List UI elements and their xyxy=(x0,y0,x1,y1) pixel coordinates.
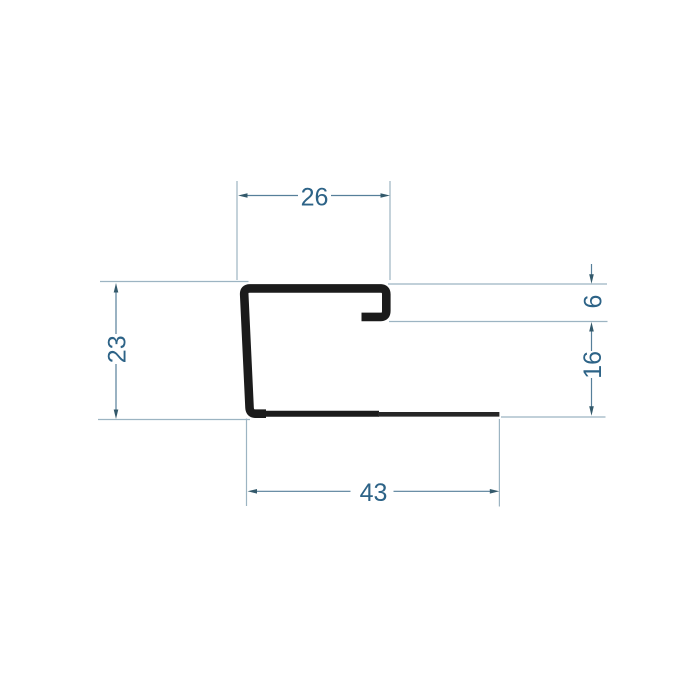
svg-text:6: 6 xyxy=(580,295,608,309)
svg-text:23: 23 xyxy=(103,335,131,363)
svg-text:26: 26 xyxy=(301,183,329,211)
svg-text:43: 43 xyxy=(360,479,388,507)
svg-text:16: 16 xyxy=(579,351,607,379)
